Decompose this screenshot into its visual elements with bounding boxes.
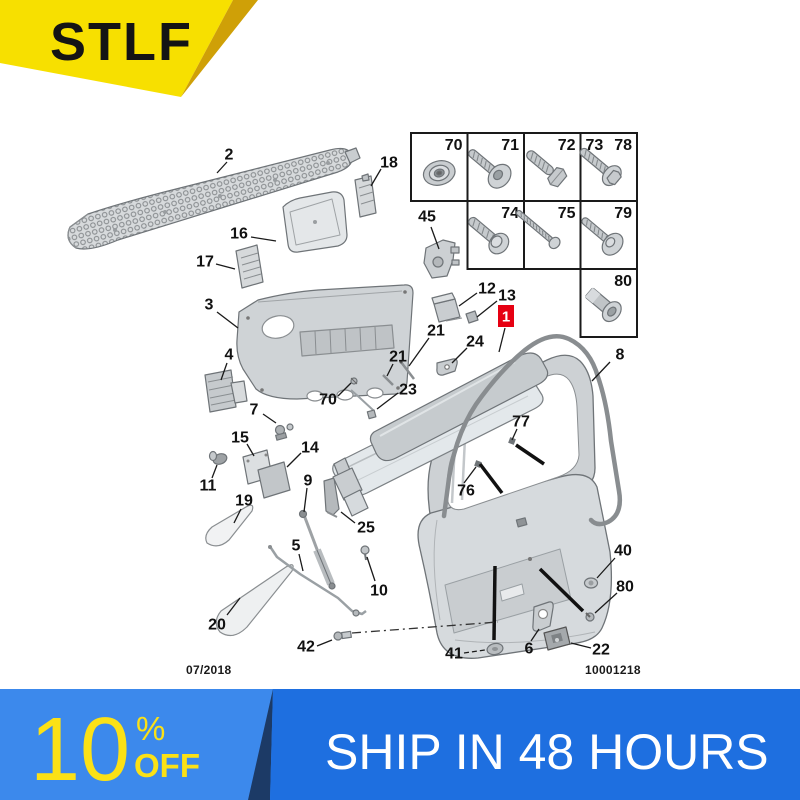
part-label-5: 5 xyxy=(292,538,301,555)
part-label-8: 8 xyxy=(616,347,625,364)
part-70-screw-loose xyxy=(351,378,357,384)
part-42-clip xyxy=(334,631,351,640)
part-label-21: 21 xyxy=(427,323,445,340)
part-40-nut xyxy=(585,578,598,588)
part-label-24: 24 xyxy=(466,334,484,351)
part-label-20: 20 xyxy=(208,617,226,634)
part-12-sensor xyxy=(432,293,462,322)
part-label-14: 14 xyxy=(301,440,319,457)
part-label-15: 15 xyxy=(231,430,249,447)
leader-line-12 xyxy=(459,293,477,306)
part-label-40: 40 xyxy=(614,543,632,560)
part-label-21: 21 xyxy=(389,349,407,366)
fastener-label-75: 75 xyxy=(558,205,576,222)
part-label-9: 9 xyxy=(304,473,313,490)
diagram-doc-number: 10001218 xyxy=(585,663,641,677)
leader-line-24 xyxy=(452,348,467,363)
part-20-corner-trim xyxy=(216,565,293,636)
part-label-13: 13 xyxy=(498,288,516,305)
leader-line-21 xyxy=(409,338,429,366)
leader-line-1 xyxy=(499,328,505,352)
leader-line-14 xyxy=(287,453,301,467)
fastener-icon-longscrew xyxy=(513,207,562,251)
fastener-label-78: 78 xyxy=(614,137,632,154)
part-label-41: 41 xyxy=(445,646,463,663)
part-18-bracket xyxy=(355,174,376,217)
part-13-clip xyxy=(466,311,478,323)
fastener-label-72: 72 xyxy=(558,137,576,154)
part-label-16: 16 xyxy=(230,226,248,243)
discount-off-label: OFF xyxy=(134,749,200,782)
part-11-plug xyxy=(210,452,229,467)
fastener-label-79: 79 xyxy=(614,205,632,222)
part-label-77: 77 xyxy=(512,414,530,431)
part-label-70: 70 xyxy=(319,392,337,409)
part-label-12: 12 xyxy=(478,281,496,298)
part-label-3: 3 xyxy=(205,297,214,314)
part-17-bracket xyxy=(236,245,263,288)
part-label-19: 19 xyxy=(235,493,253,510)
leader-line-17 xyxy=(216,264,235,269)
part-label-76: 76 xyxy=(457,483,475,500)
fastener-label-80: 80 xyxy=(614,273,632,290)
fastener-label-70: 70 xyxy=(445,137,463,154)
part-label-17: 17 xyxy=(196,254,214,271)
product-image-page: 2181617345121312124217023471514111992551… xyxy=(0,0,800,800)
leader-line-10 xyxy=(367,557,375,581)
part-label-45: 45 xyxy=(418,209,436,226)
leader-line-16 xyxy=(251,237,276,241)
part-label-4: 4 xyxy=(225,347,234,364)
leader-line-5 xyxy=(299,554,303,571)
part-19-corner-trim xyxy=(206,505,253,546)
leader-line-22 xyxy=(571,643,591,648)
part-label-10: 10 xyxy=(370,583,388,600)
part-label-1: 1 xyxy=(502,309,510,326)
part-4-module xyxy=(205,370,247,412)
part-label-23: 23 xyxy=(399,382,417,399)
diagram-date-code: 07/2018 xyxy=(186,663,231,677)
part-label-80: 80 xyxy=(616,579,634,596)
part-7-clip xyxy=(276,424,294,440)
brand-logo-text: STLF xyxy=(50,15,193,69)
leader-line-42 xyxy=(317,640,332,646)
leader-line-18 xyxy=(371,169,381,186)
part-80-screw-loose xyxy=(586,613,594,621)
part-label-22: 22 xyxy=(592,642,610,659)
part-label-2: 2 xyxy=(225,147,234,164)
leader-line-7 xyxy=(263,414,276,423)
discount-percent-sign: % xyxy=(136,712,165,745)
part-label-6: 6 xyxy=(525,641,534,658)
fastener-icon-nut xyxy=(421,157,458,188)
part-45-bracket xyxy=(424,240,459,278)
leader-line-13 xyxy=(477,301,497,317)
part-label-11: 11 xyxy=(200,478,217,495)
indicator-line xyxy=(494,566,495,640)
part-label-7: 7 xyxy=(250,402,259,419)
leader-line-11 xyxy=(212,465,217,478)
part-label-25: 25 xyxy=(357,520,375,537)
part-label-18: 18 xyxy=(380,155,398,172)
leader-line-2 xyxy=(217,162,227,173)
parts-diagram: 2181617345121312124217023471514111992551… xyxy=(0,0,800,800)
shipping-promise-text: SHIP IN 48 HOURS xyxy=(325,727,769,777)
leader-line-9 xyxy=(304,488,307,512)
part-label-42: 42 xyxy=(297,639,315,656)
discount-value: 10 xyxy=(30,705,130,795)
part-16-panel xyxy=(283,192,347,252)
part-3-trim-panel xyxy=(237,285,413,401)
fastener-label-71: 71 xyxy=(501,137,519,154)
leader-line-3 xyxy=(217,312,238,328)
fastener-icon-rivet xyxy=(582,284,625,325)
